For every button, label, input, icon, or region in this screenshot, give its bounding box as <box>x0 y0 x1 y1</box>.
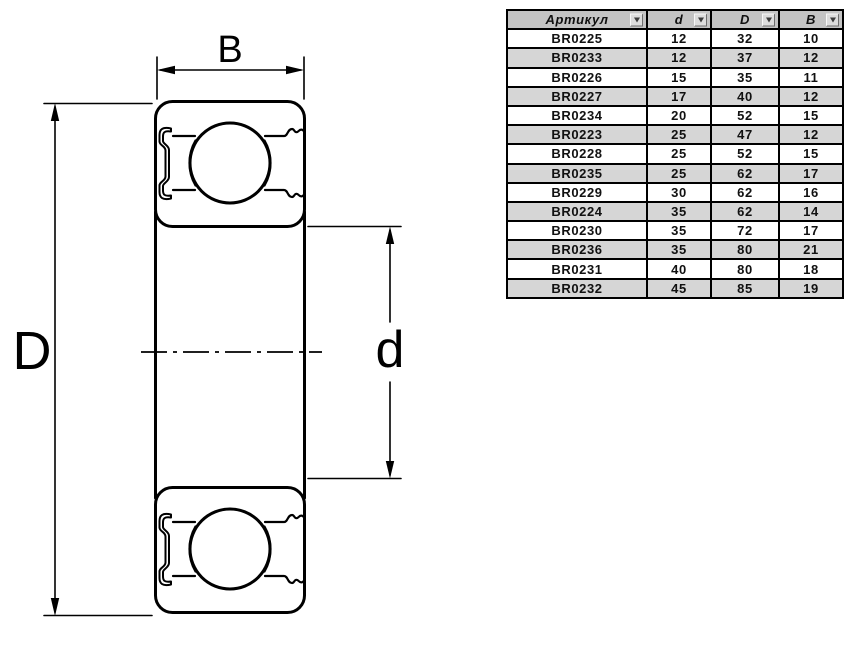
table-row: BR0233123712 <box>507 48 843 67</box>
cell-d: 40 <box>647 259 711 278</box>
cell-B: 14 <box>779 202 843 221</box>
column-header-label: Артикул <box>545 12 608 27</box>
table-row: BR0223254712 <box>507 125 843 144</box>
cell-B: 12 <box>779 87 843 106</box>
cell-B: 11 <box>779 68 843 87</box>
cell-d: 17 <box>647 87 711 106</box>
column-header-label: D <box>740 12 750 27</box>
bearing-section-top <box>156 102 305 227</box>
cell-D: 37 <box>711 48 779 67</box>
extension-lines <box>44 104 152 616</box>
size-table-panel: Артикул d D <box>506 9 844 299</box>
table-row: BR0232458519 <box>507 279 843 298</box>
cell-article: BR0223 <box>507 125 647 144</box>
cell-D: 72 <box>711 221 779 240</box>
cell-B: 16 <box>779 183 843 202</box>
column-header-label: B <box>806 12 816 27</box>
cell-article: BR0226 <box>507 68 647 87</box>
table-row: BR0236358021 <box>507 240 843 259</box>
cell-article: BR0236 <box>507 240 647 259</box>
cell-B: 17 <box>779 164 843 183</box>
label-outer-diameter-d: D <box>13 321 52 381</box>
filter-dropdown-icon <box>766 17 772 22</box>
cell-D: 47 <box>711 125 779 144</box>
cell-D: 32 <box>711 29 779 48</box>
cell-d: 25 <box>647 144 711 163</box>
cell-d: 35 <box>647 202 711 221</box>
table-row: BR0225123210 <box>507 29 843 48</box>
arrowhead-bottom <box>386 461 394 479</box>
cell-article: BR0227 <box>507 87 647 106</box>
cell-article: BR0235 <box>507 164 647 183</box>
table-row: BR0226153511 <box>507 68 843 87</box>
arrowhead-left <box>157 66 175 74</box>
arrowhead-right <box>286 66 304 74</box>
cell-B: 12 <box>779 48 843 67</box>
cell-B: 17 <box>779 221 843 240</box>
cell-article: BR0233 <box>507 48 647 67</box>
label-bore-d: d <box>376 321 405 379</box>
cell-B: 15 <box>779 144 843 163</box>
filter-dropdown-icon <box>698 17 704 22</box>
table-row: BR0228255215 <box>507 144 843 163</box>
cell-B: 12 <box>779 125 843 144</box>
cell-article: BR0232 <box>507 279 647 298</box>
header-row: Артикул d D <box>507 10 843 29</box>
cell-D: 62 <box>711 164 779 183</box>
cell-B: 15 <box>779 106 843 125</box>
table-row: BR0235256217 <box>507 164 843 183</box>
ball <box>190 509 270 589</box>
cell-D: 62 <box>711 183 779 202</box>
bearing-cross-section-diagram: B D d <box>0 0 470 650</box>
arrowhead-top <box>51 103 59 121</box>
table-row: BR0234205215 <box>507 106 843 125</box>
cell-article: BR0229 <box>507 183 647 202</box>
cell-article: BR0228 <box>507 144 647 163</box>
dimension-d-outer <box>44 103 152 616</box>
cell-d: 12 <box>647 48 711 67</box>
arrowhead-bottom <box>51 598 59 616</box>
table-row: BR0231408018 <box>507 259 843 278</box>
filter-dropdown-button-d[interactable] <box>694 13 707 26</box>
table-row: BR0224356214 <box>507 202 843 221</box>
cell-article: BR0230 <box>507 221 647 240</box>
label-width-b: B <box>217 29 242 71</box>
cell-d: 15 <box>647 68 711 87</box>
cell-d: 30 <box>647 183 711 202</box>
cell-D: 62 <box>711 202 779 221</box>
bore-side-lines <box>156 212 305 498</box>
column-header-D: D <box>711 10 779 29</box>
cell-article: BR0234 <box>507 106 647 125</box>
cell-d: 35 <box>647 240 711 259</box>
cell-d: 35 <box>647 221 711 240</box>
table-row: BR0227174012 <box>507 87 843 106</box>
filter-dropdown-icon <box>634 17 640 22</box>
table-row: BR0229306216 <box>507 183 843 202</box>
ball <box>190 123 270 203</box>
cell-B: 19 <box>779 279 843 298</box>
column-header-article: Артикул <box>507 10 647 29</box>
cell-D: 80 <box>711 259 779 278</box>
filter-dropdown-button-article[interactable] <box>630 13 643 26</box>
cell-d: 45 <box>647 279 711 298</box>
cell-article: BR0224 <box>507 202 647 221</box>
column-header-d: d <box>647 10 711 29</box>
cell-B: 10 <box>779 29 843 48</box>
cell-B: 18 <box>779 259 843 278</box>
filter-dropdown-icon <box>830 17 836 22</box>
cell-d: 20 <box>647 106 711 125</box>
cell-B: 21 <box>779 240 843 259</box>
cell-d: 25 <box>647 164 711 183</box>
cell-D: 80 <box>711 240 779 259</box>
cell-D: 52 <box>711 106 779 125</box>
column-header-label: d <box>675 12 684 27</box>
filter-dropdown-button-B[interactable] <box>826 13 839 26</box>
cell-D: 40 <box>711 87 779 106</box>
arrowhead-top <box>386 227 394 245</box>
cell-article: BR0231 <box>507 259 647 278</box>
cell-D: 35 <box>711 68 779 87</box>
filter-dropdown-button-D[interactable] <box>762 13 775 26</box>
cell-d: 12 <box>647 29 711 48</box>
cell-D: 52 <box>711 144 779 163</box>
cell-D: 85 <box>711 279 779 298</box>
cell-d: 25 <box>647 125 711 144</box>
column-header-B: B <box>779 10 843 29</box>
bearing-size-table: Артикул d D <box>506 9 844 299</box>
bearing-section-bottom <box>156 488 305 613</box>
table-row: BR0230357217 <box>507 221 843 240</box>
cell-article: BR0225 <box>507 29 647 48</box>
